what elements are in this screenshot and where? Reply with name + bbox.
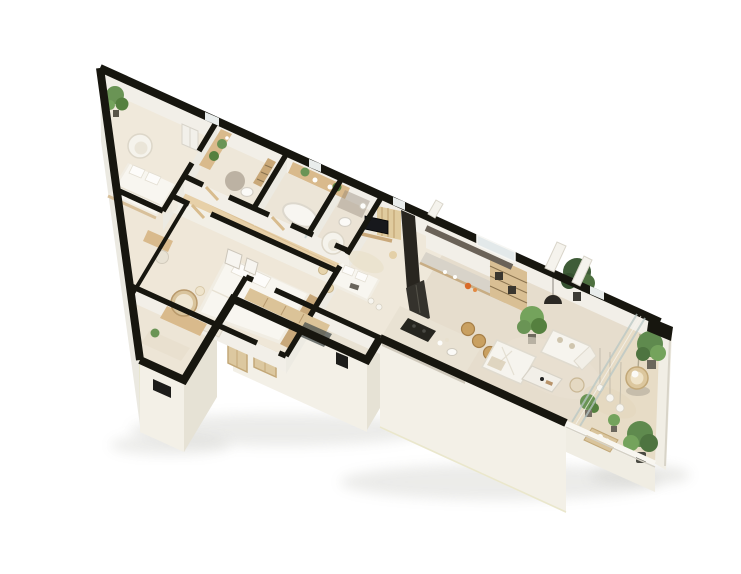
floorplan-render-canvas <box>0 0 741 574</box>
basin <box>360 203 366 209</box>
orange-pot <box>465 283 471 289</box>
side-table <box>570 378 584 392</box>
toilet <box>339 218 351 227</box>
apartment-isometric-svg <box>0 0 741 574</box>
wc <box>241 188 253 197</box>
island-sink <box>447 349 457 356</box>
